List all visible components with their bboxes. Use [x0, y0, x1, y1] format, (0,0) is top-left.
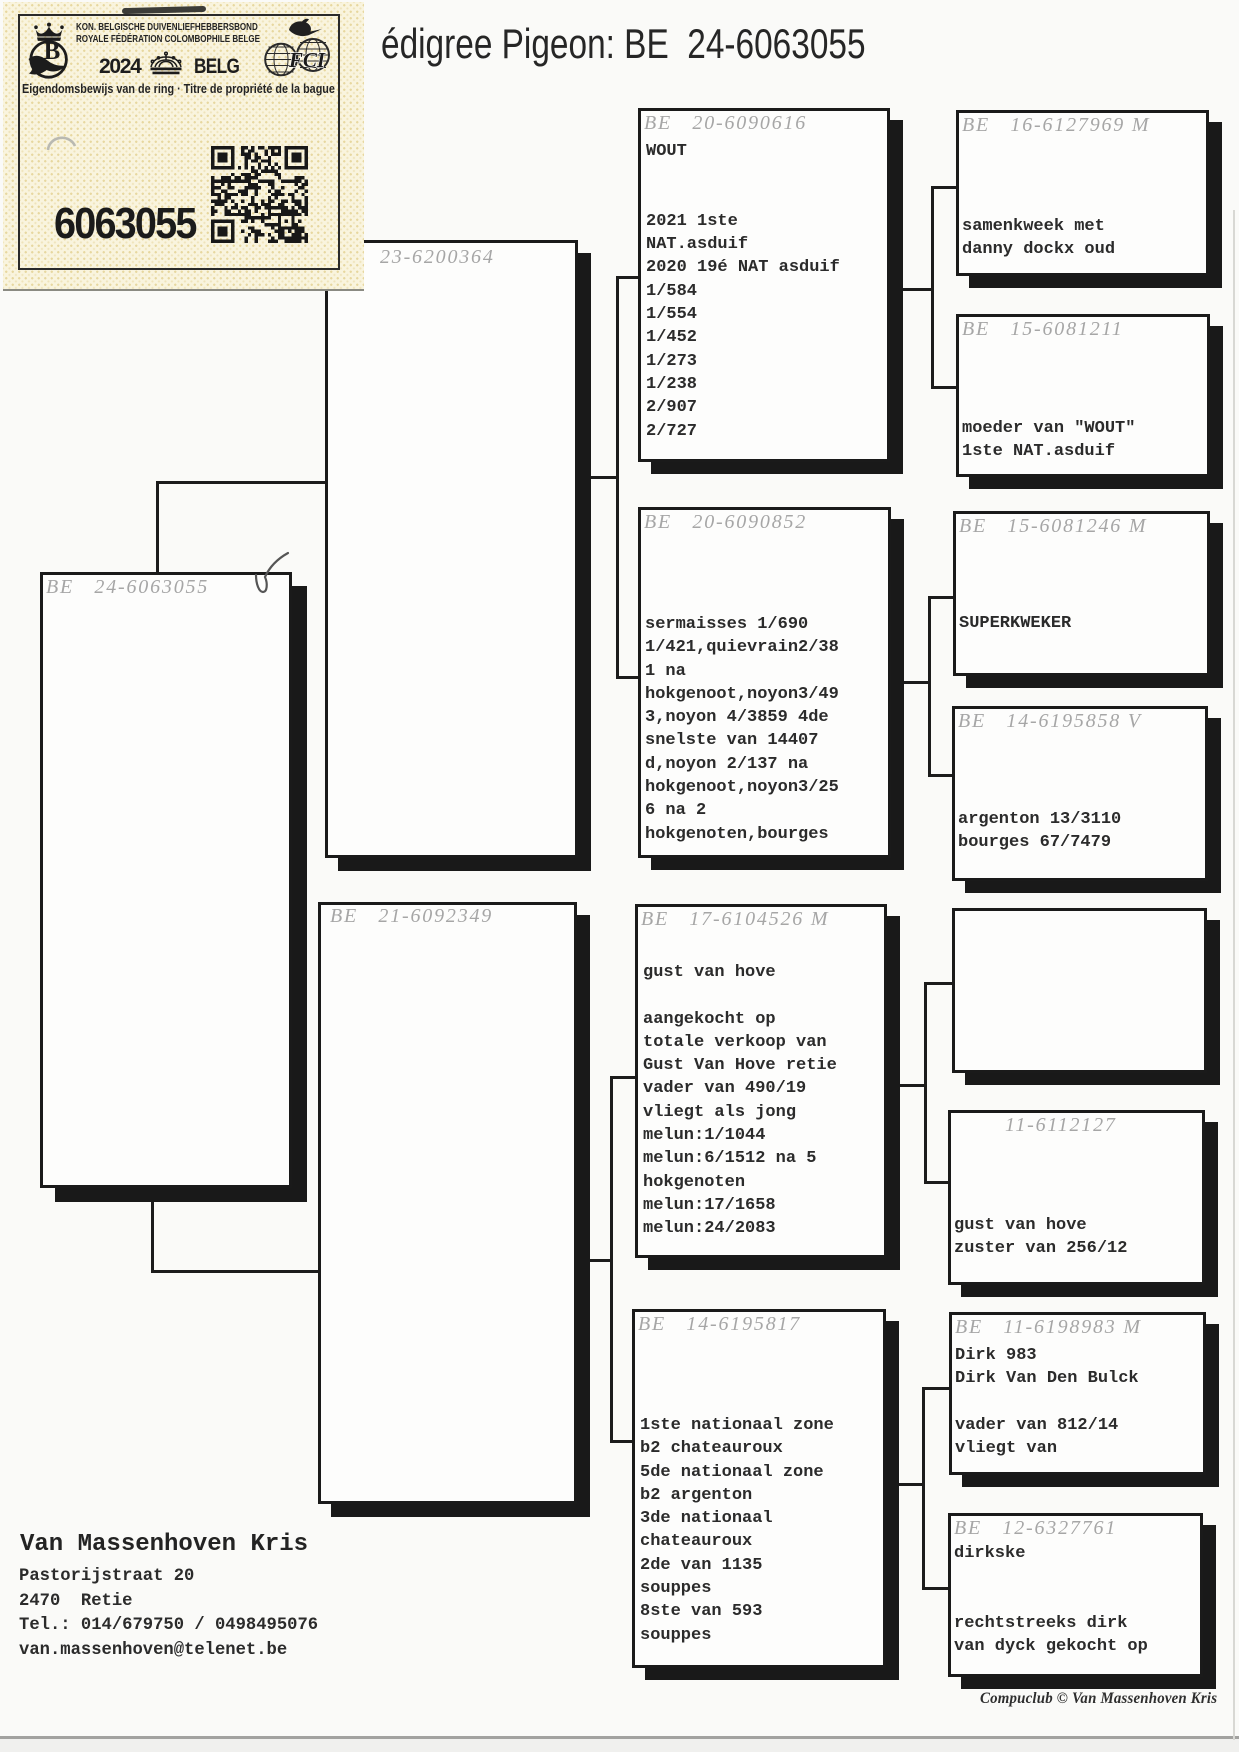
- svg-text:FCI: FCI: [288, 48, 326, 72]
